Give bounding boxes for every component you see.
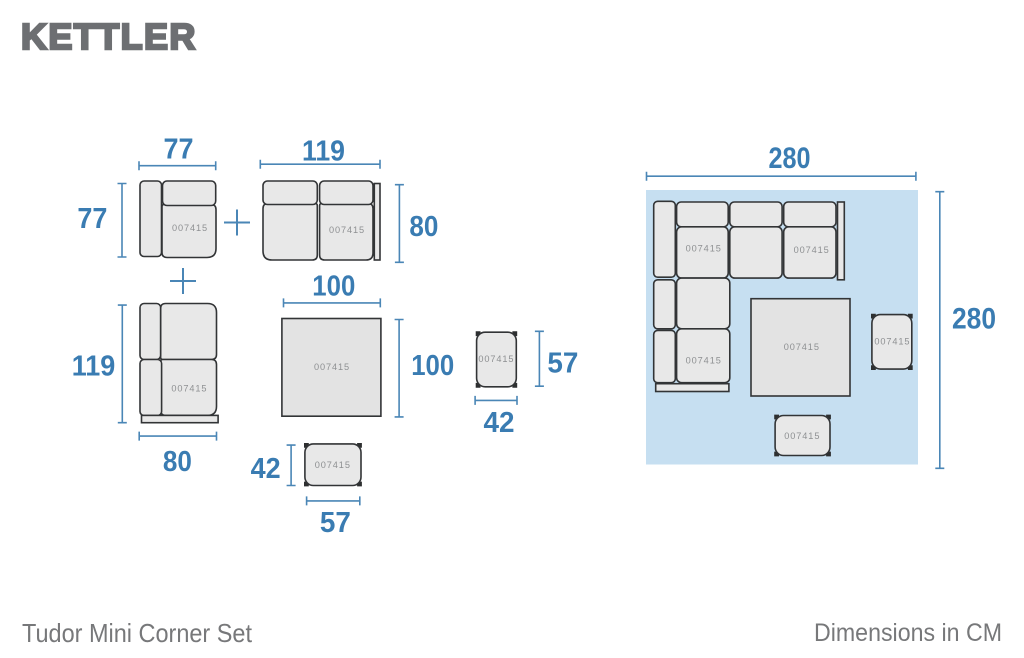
svg-text:80: 80 (163, 446, 192, 478)
svg-text:007415: 007415 (794, 245, 830, 255)
svg-text:80: 80 (409, 211, 438, 243)
svg-text:280: 280 (769, 142, 811, 175)
svg-text:119: 119 (72, 350, 116, 382)
svg-text:KETTLER: KETTLER (21, 16, 197, 57)
svg-text:42: 42 (484, 407, 515, 439)
svg-text:007415: 007415 (315, 460, 351, 470)
svg-text:007415: 007415 (329, 225, 365, 235)
svg-text:77: 77 (77, 203, 107, 235)
svg-text:007415: 007415 (874, 337, 910, 347)
svg-text:42: 42 (251, 453, 281, 485)
svg-text:57: 57 (320, 507, 351, 539)
svg-text:57: 57 (547, 348, 578, 380)
svg-text:Tudor Mini Corner Set: Tudor Mini Corner Set (22, 618, 253, 648)
svg-text:007415: 007415 (686, 244, 722, 254)
svg-text:007415: 007415 (478, 354, 514, 364)
svg-text:007415: 007415 (784, 342, 820, 352)
svg-text:007415: 007415 (171, 384, 207, 394)
svg-text:007415: 007415 (172, 223, 208, 233)
svg-text:Dimensions in CM: Dimensions in CM (814, 619, 1002, 647)
svg-text:007415: 007415 (314, 362, 350, 372)
svg-text:007415: 007415 (686, 356, 722, 366)
svg-text:007415: 007415 (784, 431, 820, 441)
svg-text:280: 280 (952, 303, 996, 336)
svg-text:100: 100 (312, 271, 355, 303)
svg-text:119: 119 (302, 136, 345, 168)
svg-text:77: 77 (164, 134, 194, 166)
svg-text:100: 100 (411, 350, 454, 382)
